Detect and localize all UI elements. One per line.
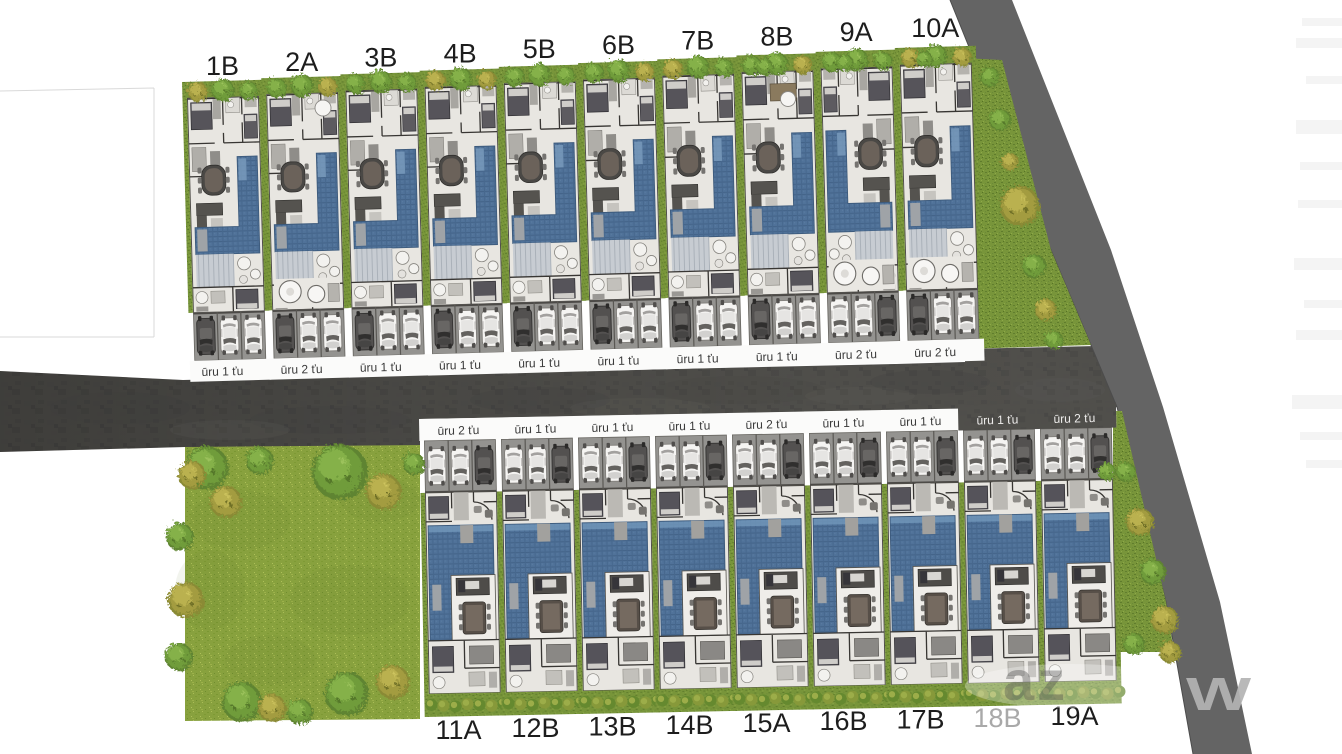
- svg-text:ūru 1 ťu: ūru 1 ťu: [668, 419, 710, 434]
- svg-text:ūru 1 ťu: ūru 1 ťu: [518, 356, 560, 371]
- svg-text:ūru 1 ťu: ūru 1 ťu: [677, 351, 719, 366]
- svg-text:4B: 4B: [444, 38, 477, 68]
- svg-text:10A: 10A: [911, 13, 959, 43]
- svg-text:ūru 2 ťu: ūru 2 ťu: [281, 362, 323, 377]
- svg-text:9A: 9A: [840, 17, 873, 47]
- svg-text:13B: 13B: [588, 712, 636, 742]
- svg-text:az: az: [1003, 649, 1068, 712]
- svg-text:ūru 1 ťu: ūru 1 ťu: [201, 364, 243, 379]
- svg-text:12B: 12B: [511, 713, 559, 743]
- svg-text:7B: 7B: [681, 26, 714, 56]
- svg-text:ūru 2 ťu: ūru 2 ťu: [914, 345, 956, 360]
- svg-text:2A: 2A: [285, 47, 318, 77]
- svg-text:11A: 11A: [435, 715, 481, 745]
- svg-text:ūru 1 ťu: ūru 1 ťu: [756, 349, 798, 364]
- svg-text:17B: 17B: [896, 705, 944, 735]
- svg-text:ūru 1 ťu: ūru 1 ťu: [899, 414, 941, 429]
- svg-text:ūru 2 ťu: ūru 2 ťu: [437, 423, 479, 438]
- svg-text:15A: 15A: [742, 708, 790, 738]
- svg-text:16B: 16B: [819, 706, 867, 736]
- svg-text:W: W: [1186, 669, 1252, 720]
- svg-text:6B: 6B: [602, 30, 635, 60]
- svg-text:ūru 1 ťu: ūru 1 ťu: [514, 422, 556, 437]
- svg-text:ūru 1 ťu: ūru 1 ťu: [597, 353, 639, 368]
- svg-text:ūru 2 ťu: ūru 2 ťu: [1053, 411, 1095, 426]
- svg-text:5B: 5B: [523, 34, 556, 64]
- svg-text:ūru 2 ťu: ūru 2 ťu: [835, 347, 877, 362]
- svg-text:ūru 1 ťu: ūru 1 ťu: [976, 413, 1018, 428]
- svg-text:14B: 14B: [665, 710, 713, 740]
- svg-text:ūru 1 ťu: ūru 1 ťu: [591, 420, 633, 435]
- svg-text:ūru 2 ťu: ūru 2 ťu: [745, 417, 787, 432]
- svg-text:ūru 1 ťu: ūru 1 ťu: [439, 358, 481, 373]
- svg-text:ūru 1 ťu: ūru 1 ťu: [822, 416, 864, 431]
- svg-text:1B: 1B: [206, 51, 239, 81]
- svg-text:8B: 8B: [760, 22, 793, 52]
- svg-text:ūru 1 ťu: ūru 1 ťu: [360, 360, 402, 375]
- svg-text:3B: 3B: [364, 43, 397, 73]
